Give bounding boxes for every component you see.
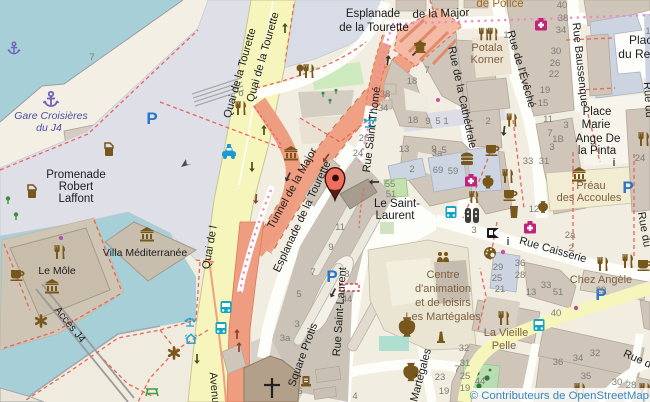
svg-text:35: 35 [581,371,592,382]
svg-text:21: 21 [495,284,506,295]
svg-text:Potala: Potala [471,42,503,54]
svg-text:18: 18 [407,76,418,87]
svg-text:2a: 2a [565,230,576,241]
svg-text:31: 31 [460,358,471,369]
svg-text:Laurent: Laurent [375,210,415,222]
svg-text:31: 31 [539,156,550,167]
svg-text:i: i [506,236,509,248]
svg-text:9: 9 [328,242,333,253]
svg-text:69: 69 [433,165,444,176]
svg-text:29: 29 [493,262,504,273]
svg-text:2: 2 [485,116,490,127]
svg-text:22: 22 [549,69,560,80]
svg-text:44: 44 [342,294,353,305]
svg-text:34: 34 [573,353,584,364]
svg-text:Le Saint-: Le Saint- [374,198,420,210]
svg-text:30: 30 [551,46,562,57]
svg-text:40: 40 [557,0,568,11]
svg-text:13: 13 [399,144,410,155]
svg-text:Korner: Korner [470,54,503,66]
svg-text:24: 24 [353,148,364,159]
svg-text:Pelle: Pelle [492,340,516,352]
svg-text:36: 36 [515,258,526,269]
svg-text:1B: 1B [552,134,564,145]
svg-text:Avenu: Avenu [207,372,222,402]
svg-text:4: 4 [352,391,357,402]
svg-text:1: 1 [443,116,448,127]
svg-text:Ange De: Ange De [576,133,621,145]
svg-text:Promenade: Promenade [46,169,105,181]
svg-text:3a: 3a [280,333,291,344]
svg-text:des Accoules: des Accoules [557,192,622,204]
svg-text:44: 44 [475,376,486,387]
svg-text:34: 34 [556,25,567,36]
svg-text:29: 29 [596,285,607,296]
svg-text:32: 32 [459,343,470,354]
svg-text:3: 3 [563,120,568,131]
svg-text:5: 5 [296,289,301,300]
svg-text:du J4: du J4 [36,122,62,134]
svg-text:Robert: Robert [59,181,94,193]
svg-text:18: 18 [408,115,419,126]
svg-text:38: 38 [380,89,391,100]
svg-text:25: 25 [460,371,471,382]
svg-text:Centre: Centre [426,269,459,281]
svg-text:du Refuge: du Refuge [618,47,650,61]
svg-text:13: 13 [526,287,537,298]
svg-text:3a: 3a [432,148,443,159]
svg-text:Le Môle: Le Môle [38,265,76,277]
svg-text:2: 2 [409,164,414,175]
svg-text:1: 1 [645,26,650,37]
svg-text:3: 3 [294,319,299,330]
svg-text:Laffont: Laffont [59,193,95,205]
svg-text:11: 11 [335,222,345,233]
svg-text:Préau: Préau [576,180,605,192]
svg-text:19: 19 [540,85,551,96]
svg-text:40: 40 [551,308,562,319]
svg-text:de la Tourette: de la Tourette [339,22,408,34]
svg-text:6: 6 [297,386,302,397]
svg-text:3: 3 [471,225,476,236]
svg-text:51: 51 [553,287,564,298]
svg-text:51: 51 [386,189,397,200]
svg-text:2: 2 [568,243,573,254]
svg-text:8: 8 [344,269,349,280]
svg-text:7: 7 [424,65,429,76]
svg-text:1: 1 [503,30,508,41]
svg-text:9: 9 [425,116,430,127]
svg-text:7: 7 [89,52,94,63]
svg-text:© Contributeurs de OpenStreetM: © Contributeurs de OpenStreetMap [470,390,649,402]
svg-text:la Pinta: la Pinta [578,145,617,157]
svg-text:i: i [612,157,615,169]
svg-text:25: 25 [492,273,503,284]
svg-text:Esplanade: Esplanade [346,8,400,20]
svg-text:24: 24 [635,153,646,164]
svg-text:d'animation: d'animation [415,283,471,295]
svg-text:11: 11 [543,114,553,125]
svg-text:38: 38 [558,13,569,24]
svg-text:Marie: Marie [582,119,611,131]
svg-text:Les Martégales: Les Martégales [405,311,481,323]
svg-text:Place: Place [583,106,612,118]
svg-text:23: 23 [435,372,446,383]
svg-text:32: 32 [590,348,601,359]
svg-text:et de loisirs: et de loisirs [415,297,471,309]
svg-text:19: 19 [439,386,450,397]
svg-text:36: 36 [553,357,564,368]
svg-text:o: o [238,88,243,99]
svg-text:12: 12 [529,204,540,215]
svg-text:34: 34 [378,103,389,114]
svg-text:Villa Méditerranée: Villa Méditerranée [103,247,188,259]
svg-text:30: 30 [612,377,623,388]
svg-text:59: 59 [448,166,459,177]
svg-text:33: 33 [541,280,552,291]
svg-text:28: 28 [515,270,526,281]
svg-text:26: 26 [550,58,561,69]
svg-text:de Police: de Police [476,0,523,10]
svg-text:26: 26 [359,133,370,144]
svg-text:15: 15 [538,98,549,109]
svg-text:33: 33 [523,156,534,167]
svg-text:La Vieille: La Vieille [484,327,528,339]
svg-text:5: 5 [435,116,440,127]
svg-text:de la Major: de la Major [412,7,469,21]
svg-text:7: 7 [310,267,315,278]
svg-text:Gare Croisières: Gare Croisières [14,110,88,122]
